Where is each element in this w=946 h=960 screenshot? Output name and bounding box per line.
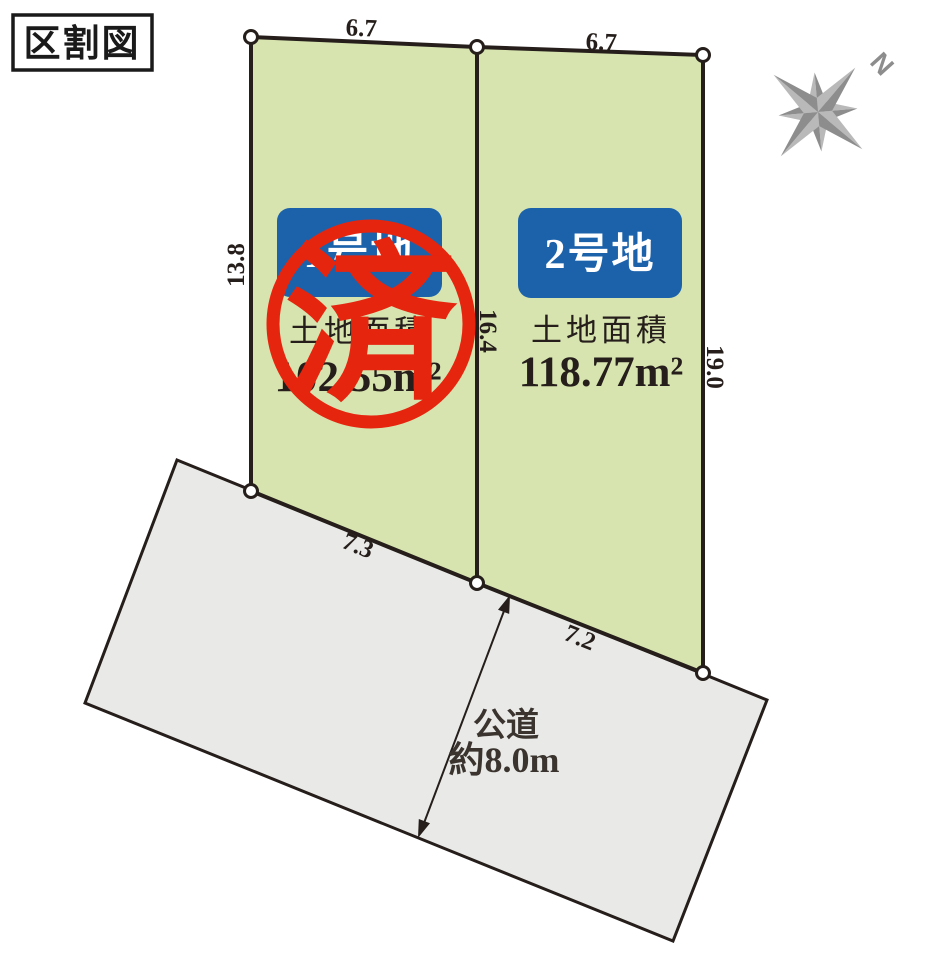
dimension-left: 13.8 bbox=[223, 243, 250, 287]
dimension-lot2-top: 6.7 bbox=[585, 28, 617, 56]
compass-north-label: N bbox=[864, 47, 899, 82]
corner-marker bbox=[697, 49, 710, 62]
lot-division-map: 1号地 土地面積 102.55m² 2号地 土地面積 118.77m² 済 6.… bbox=[0, 0, 946, 960]
lot-2-area-label: 土地面積 bbox=[531, 313, 671, 348]
corner-marker bbox=[245, 31, 258, 44]
sold-stamp-text: 済 bbox=[285, 230, 458, 422]
corner-marker bbox=[471, 41, 484, 54]
map-canvas: 1号地 土地面積 102.55m² 2号地 土地面積 118.77m² 済 6.… bbox=[0, 0, 946, 960]
lot-2-area-value: 118.77m² bbox=[519, 349, 684, 396]
lot-2-name: 2号地 bbox=[544, 231, 655, 278]
corner-marker bbox=[245, 485, 258, 498]
dimension-lot1-top: 6.7 bbox=[345, 14, 377, 42]
compass-rose bbox=[736, 30, 899, 193]
road-width-label: 約8.0m bbox=[449, 740, 560, 780]
dimension-divider: 16.4 bbox=[474, 309, 501, 353]
page-title: 区割図 bbox=[24, 23, 141, 64]
sold-stamp: 済 bbox=[273, 226, 469, 422]
corner-marker bbox=[471, 577, 484, 590]
corner-marker bbox=[697, 667, 710, 680]
dimension-right: 19.0 bbox=[701, 345, 728, 389]
road-name: 公道 bbox=[473, 707, 539, 744]
